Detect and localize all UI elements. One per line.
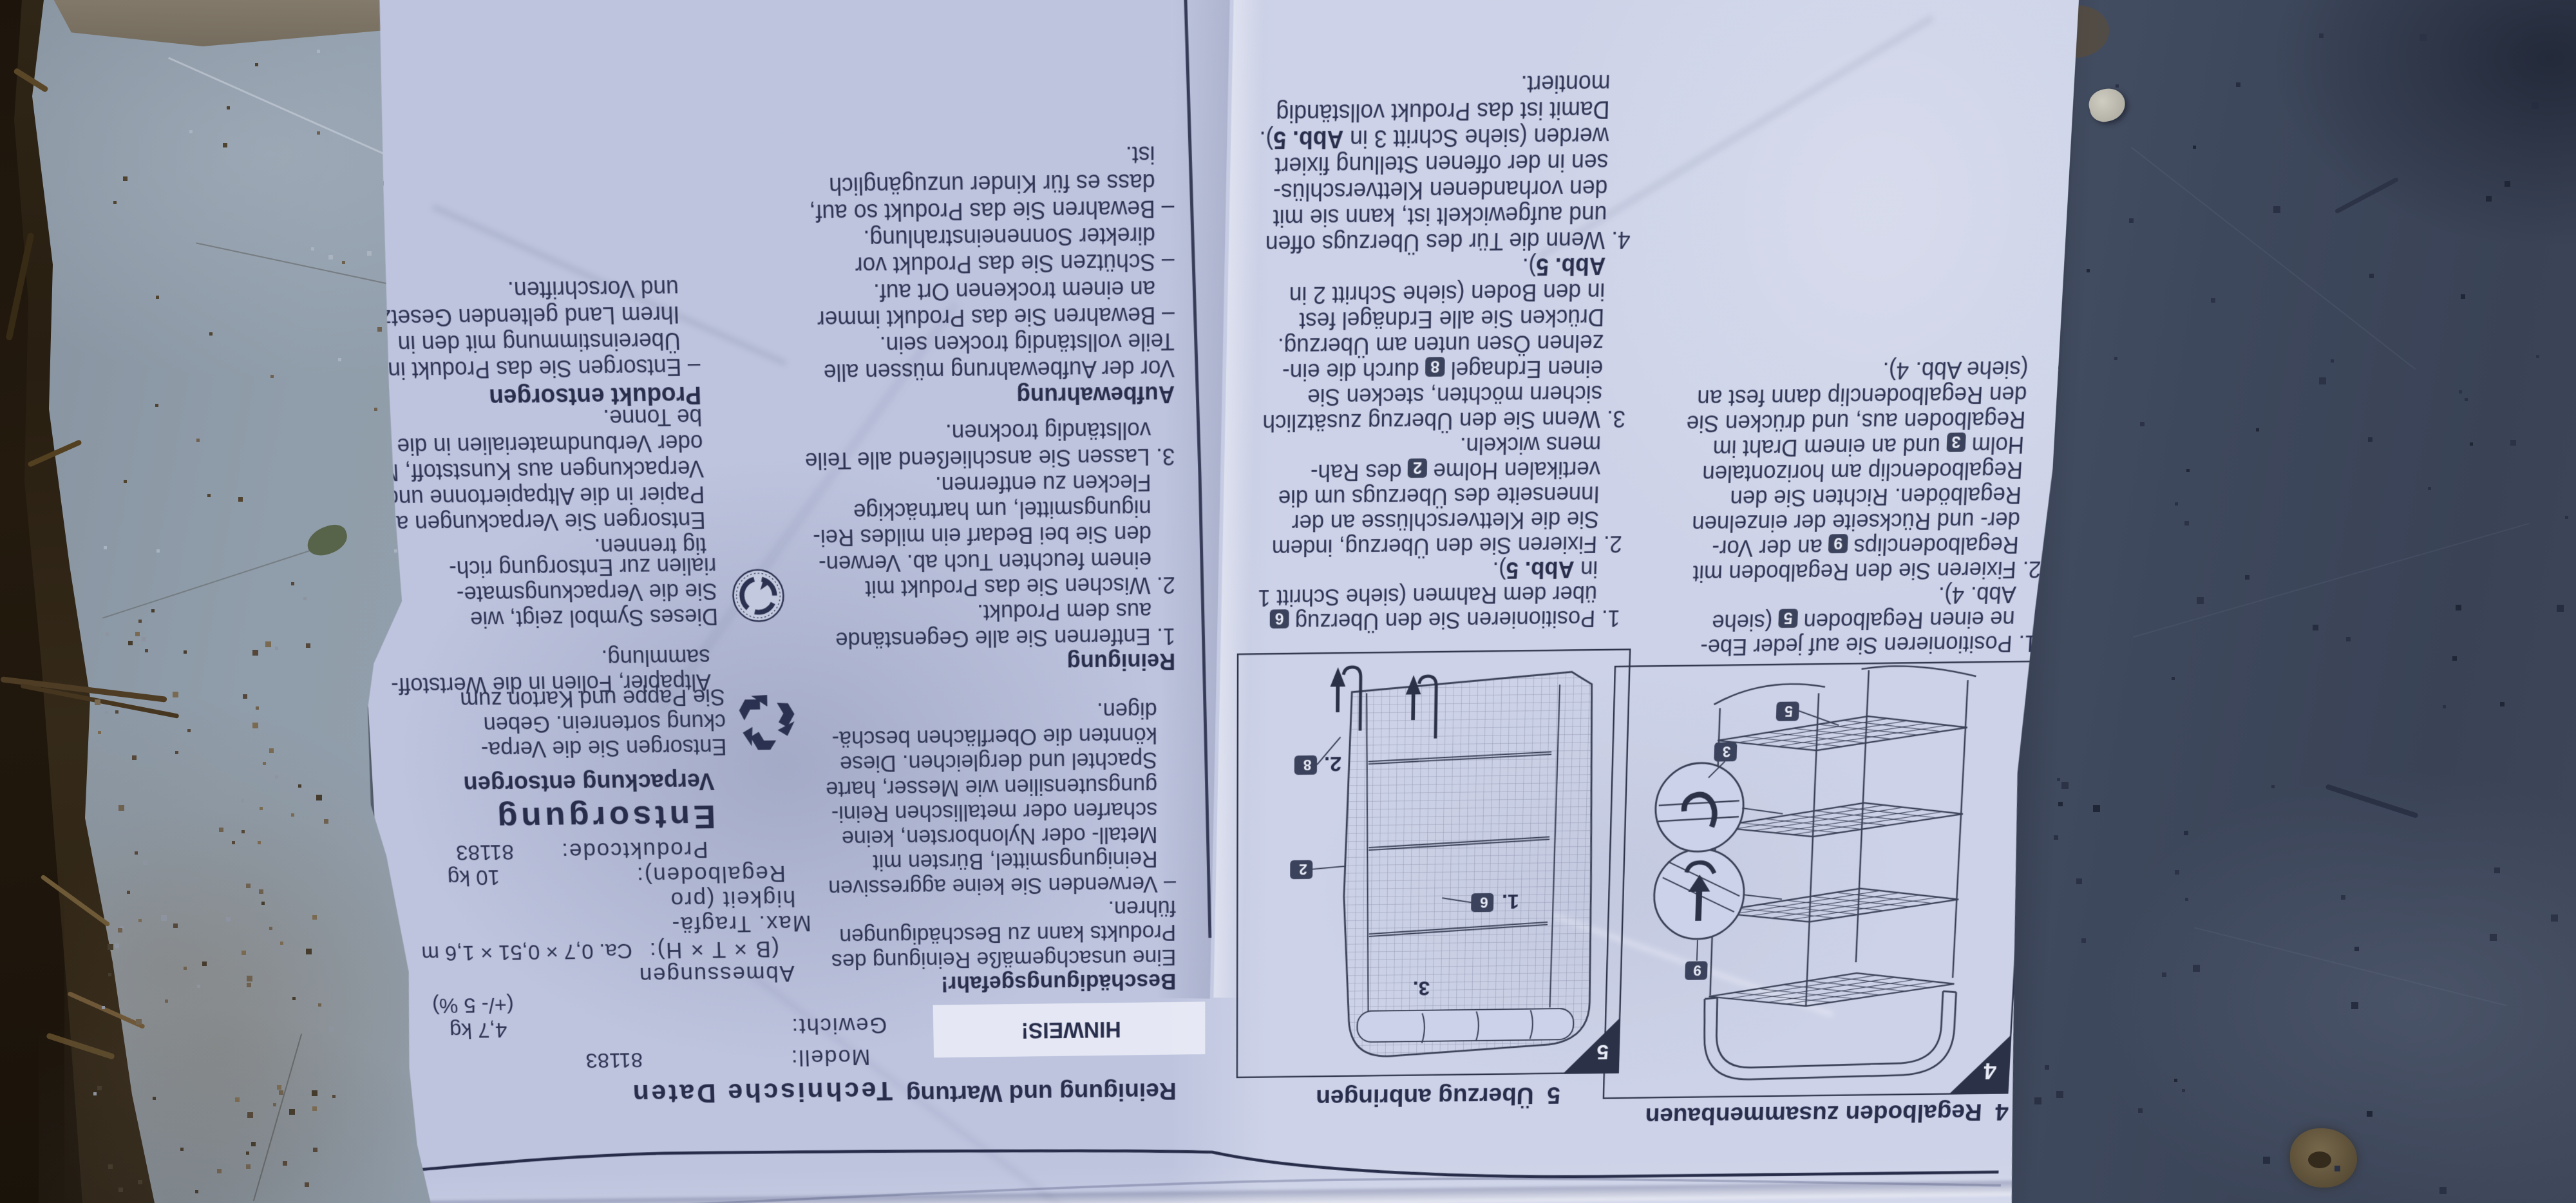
svg-text:3: 3 — [1722, 743, 1731, 761]
svg-text:4: 4 — [1983, 1058, 1997, 1084]
svg-text:5: 5 — [1596, 1040, 1609, 1064]
svg-text:3.: 3. — [1413, 977, 1430, 1000]
svg-text:1.: 1. — [1502, 890, 1519, 913]
svg-text:6: 6 — [1480, 894, 1488, 911]
svg-text:5: 5 — [1784, 703, 1793, 720]
svg-text:2: 2 — [1299, 861, 1307, 878]
svg-text:2.: 2. — [1324, 752, 1341, 776]
svg-text:9: 9 — [1693, 962, 1701, 979]
svg-text:8: 8 — [1303, 757, 1312, 773]
